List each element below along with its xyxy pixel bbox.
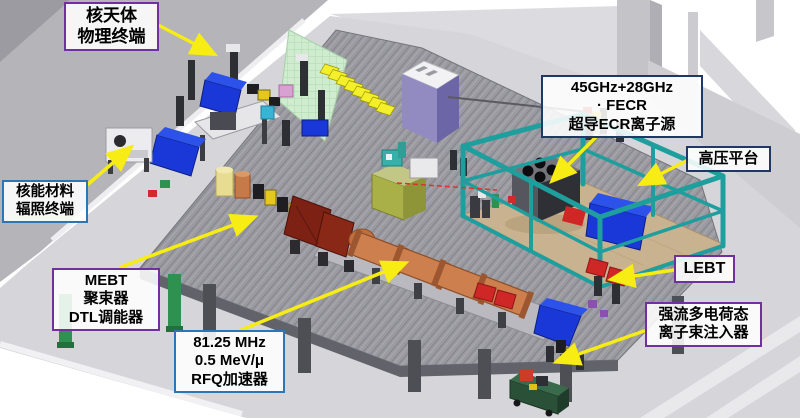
callout-astro-terminal: 核天体 物理终端 xyxy=(64,2,159,51)
callout-line: 高压平台 xyxy=(691,150,766,168)
callout-line: 超导ECR离子源 xyxy=(546,116,698,134)
callout-line: 强流多电荷态 xyxy=(650,306,757,324)
blue-seat xyxy=(302,120,328,136)
callout-line: 核天体 xyxy=(69,6,154,27)
callout-line: 核能材料 xyxy=(7,184,83,202)
callout-lebt: LEBT xyxy=(674,255,735,283)
callout-line: RFQ加速器 xyxy=(179,371,280,389)
callout-line: 离子束注入器 xyxy=(650,324,757,342)
cyan-box xyxy=(261,106,274,119)
callout-line: 0.5 MeV/μ xyxy=(179,352,280,370)
scene-canvas xyxy=(0,0,800,418)
pink-box xyxy=(279,85,293,97)
callout-line: · FECR xyxy=(546,97,698,115)
callout-line: DTL调能器 xyxy=(57,309,155,327)
callout-fecr: 45GHz+28GHz · FECR 超导ECR离子源 xyxy=(541,75,703,138)
callout-line: 45GHz+28GHz xyxy=(546,79,698,97)
callout-line: 辐照终端 xyxy=(7,202,83,220)
callout-line: LEBT xyxy=(679,259,730,279)
callout-line: 物理终端 xyxy=(69,27,154,48)
callout-material-terminal: 核能材料 辐照终端 xyxy=(2,180,88,223)
callout-line: 聚束器 xyxy=(57,290,155,308)
facility-3d-diagram: 核天体 物理终端 核能材料 辐照终端 MEBT 聚束器 DTL调能器 81.25… xyxy=(0,0,800,418)
callout-line: 81.25 MHz xyxy=(179,334,280,352)
callout-rfq: 81.25 MHz 0.5 MeV/μ RFQ加速器 xyxy=(174,330,285,393)
callout-injector: 强流多电荷态 离子束注入器 xyxy=(645,302,762,347)
callout-hv-platform: 高压平台 xyxy=(686,146,771,172)
callout-mebt: MEBT 聚束器 DTL调能器 xyxy=(52,268,160,331)
callout-line: MEBT xyxy=(57,272,155,290)
